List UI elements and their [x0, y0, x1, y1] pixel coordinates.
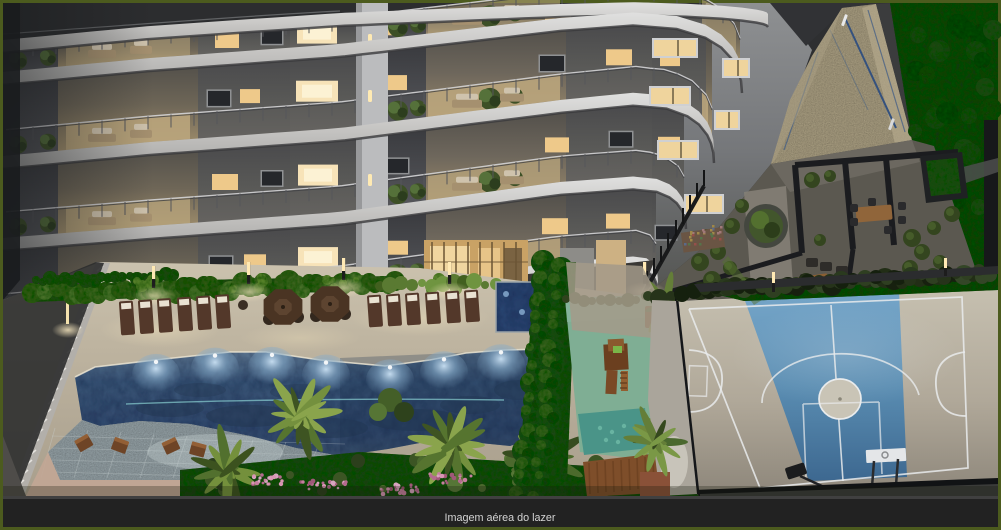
svg-text:Imagem aérea do lazer: Imagem aérea do lazer — [444, 512, 555, 524]
